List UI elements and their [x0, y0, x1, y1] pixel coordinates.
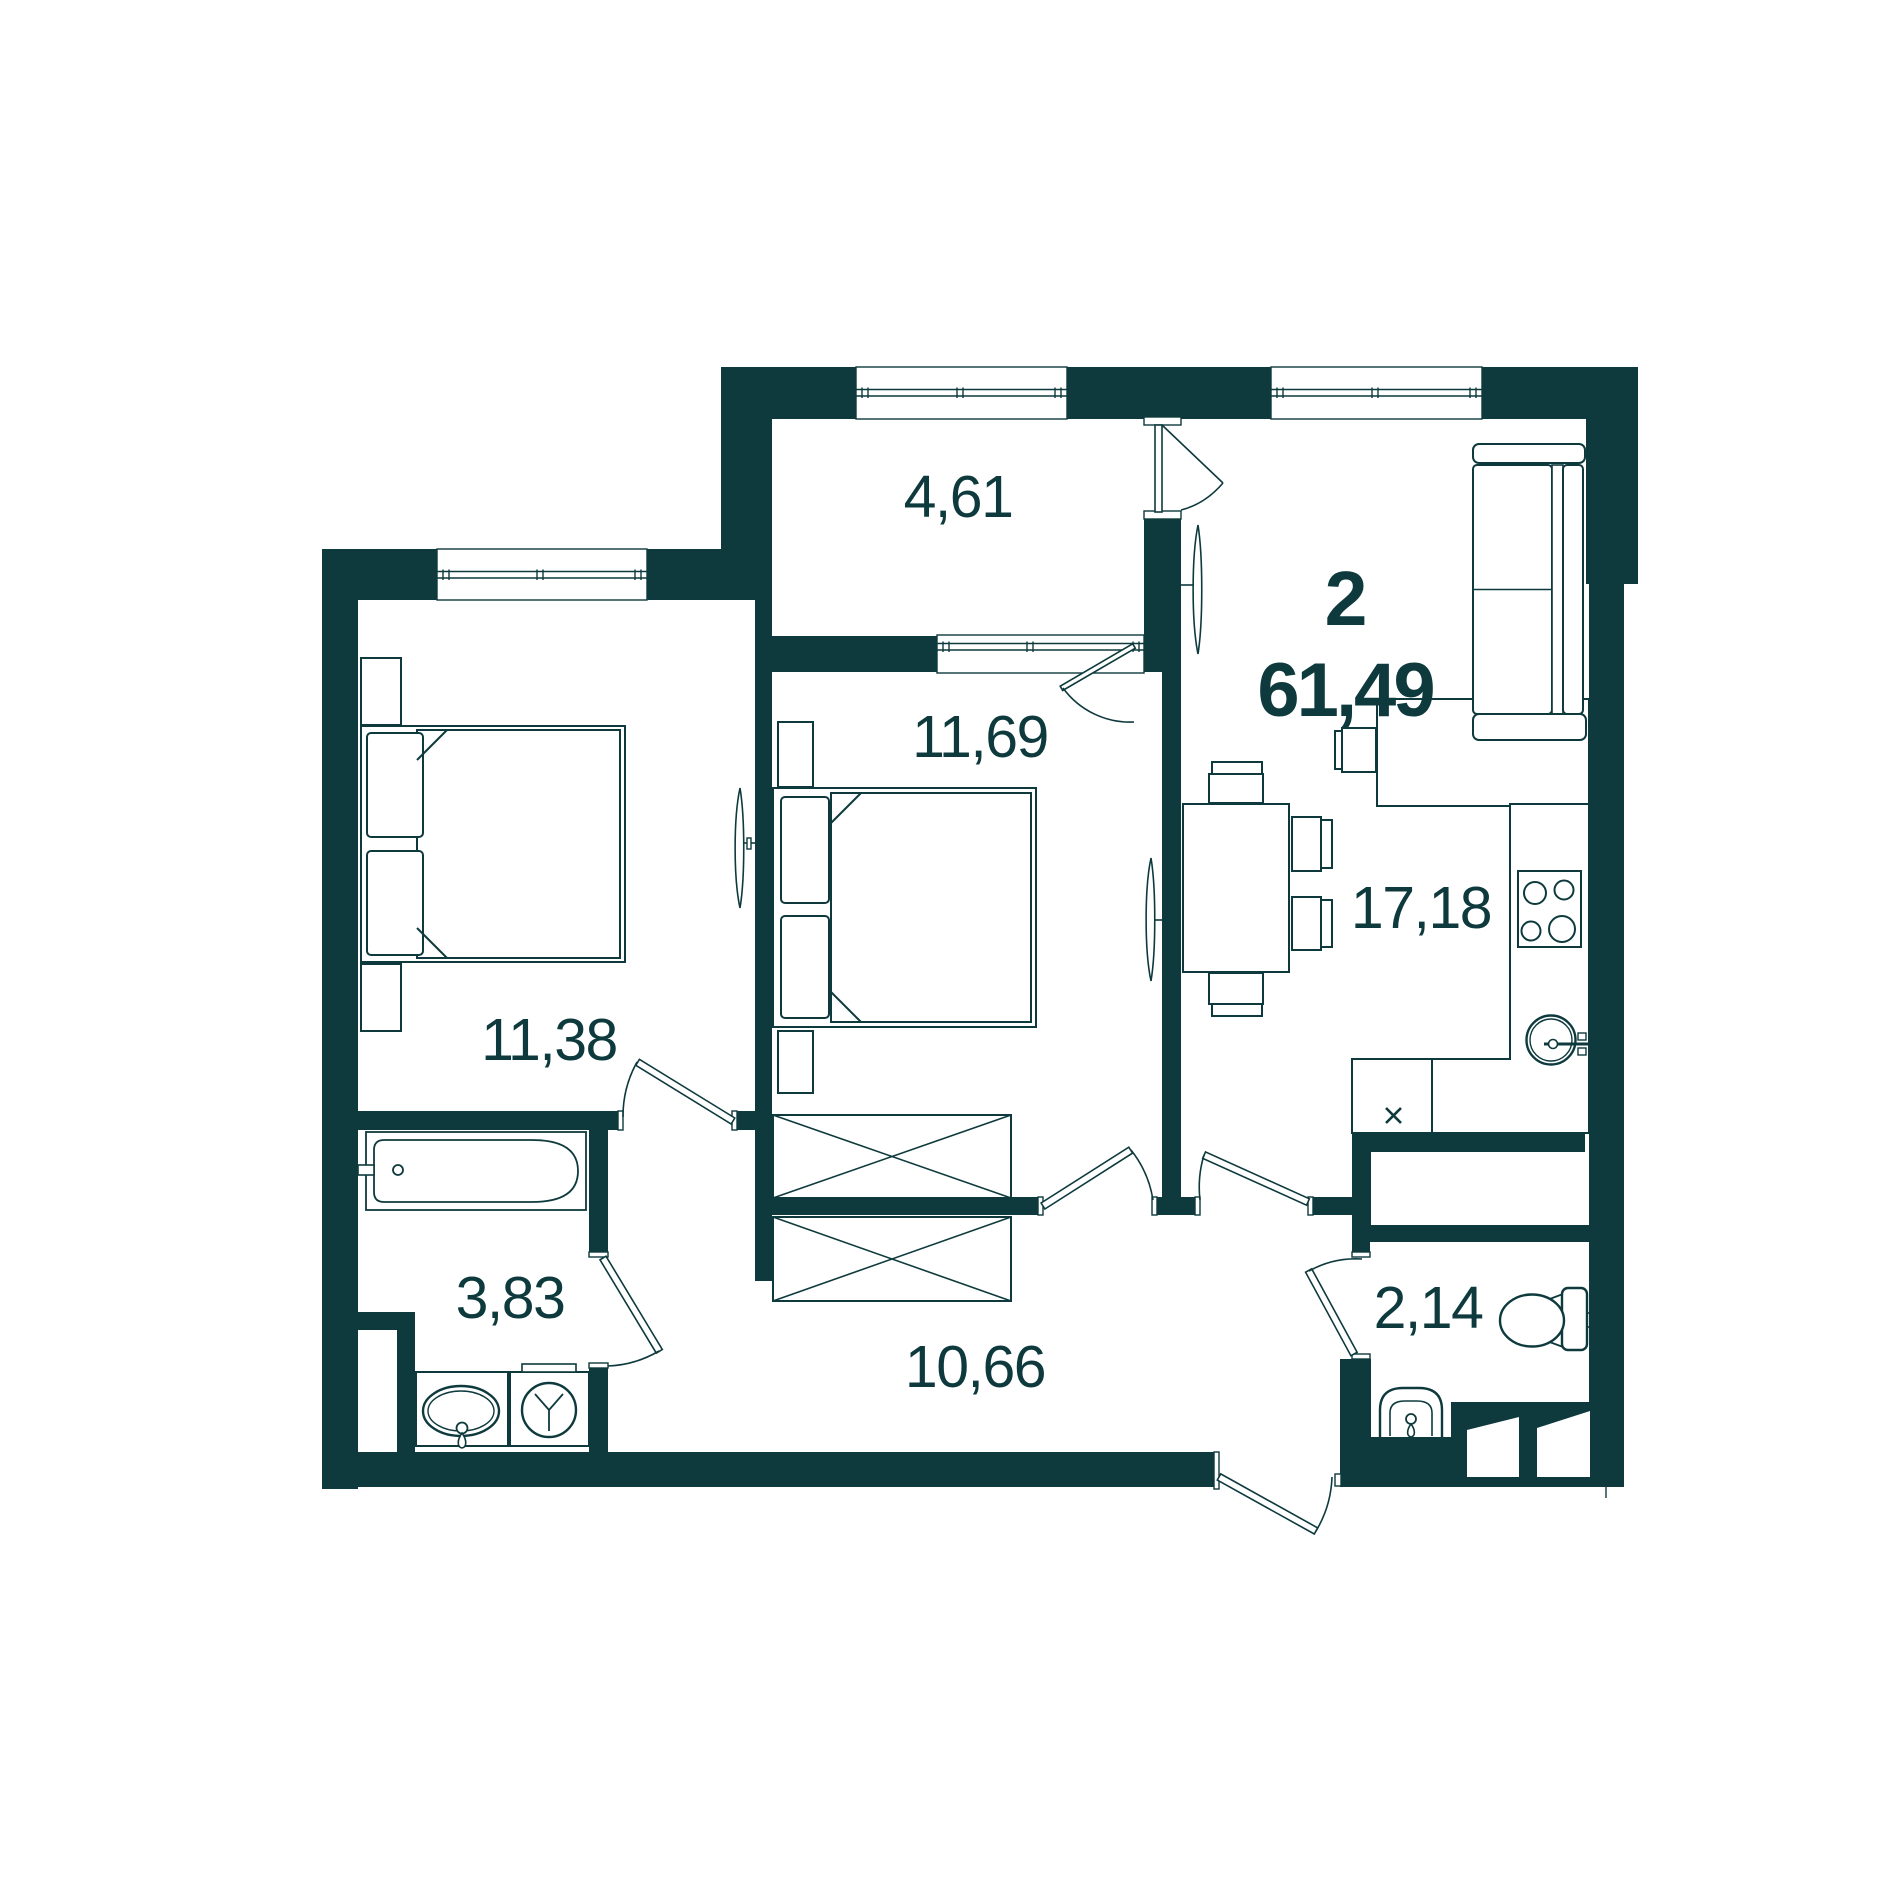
svg-text:4,61: 4,61: [904, 464, 1013, 530]
svg-text:61,49: 61,49: [1257, 648, 1433, 733]
svg-text:11,38: 11,38: [481, 1007, 617, 1073]
svg-text:10,66: 10,66: [905, 1334, 1045, 1400]
svg-text:17,18: 17,18: [1351, 875, 1491, 941]
svg-text:2,14: 2,14: [1374, 1275, 1484, 1341]
svg-text:2: 2: [1325, 556, 1368, 642]
svg-text:11,69: 11,69: [912, 704, 1048, 770]
svg-text:3,83: 3,83: [456, 1265, 565, 1331]
